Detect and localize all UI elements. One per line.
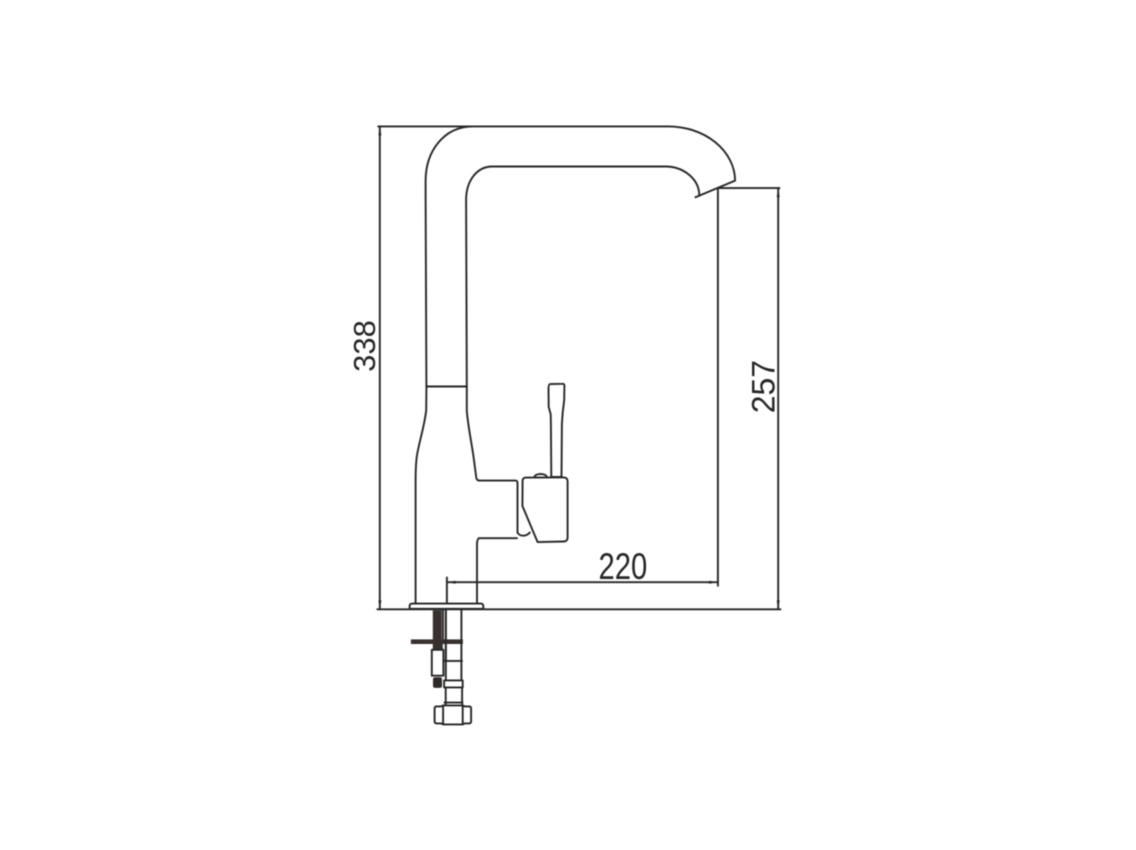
svg-text:220: 220 <box>599 546 648 587</box>
svg-text:257: 257 <box>746 360 782 413</box>
svg-text:338: 338 <box>347 320 382 372</box>
